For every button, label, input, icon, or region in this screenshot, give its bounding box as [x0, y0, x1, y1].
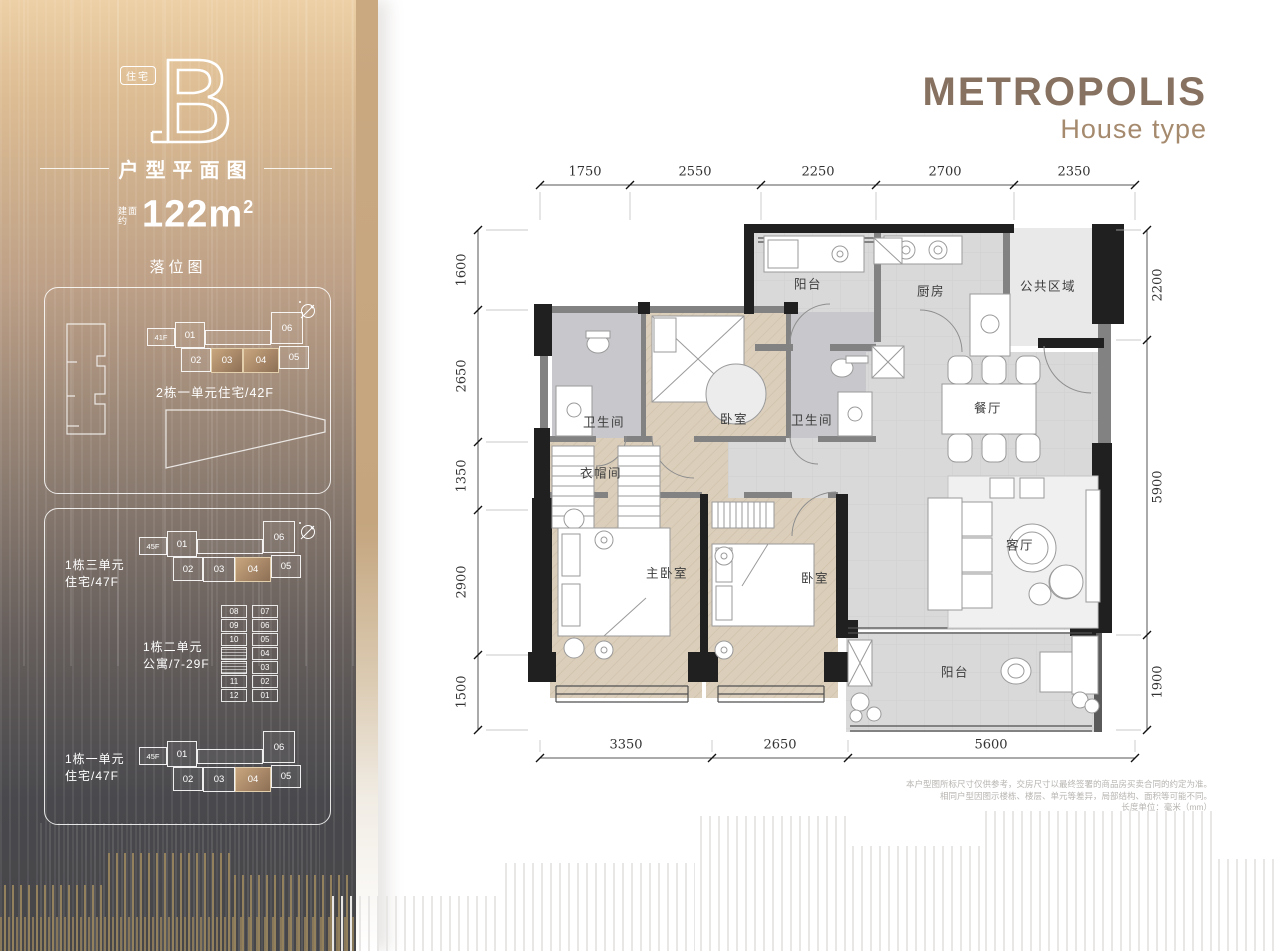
room-label-bedroom-top: 卧室	[720, 409, 748, 428]
tower-unit: 11	[221, 675, 247, 688]
unit-04-highlighted: 04	[235, 557, 271, 582]
dim-top-1: 1750	[568, 165, 601, 180]
skyline-bars-decor	[852, 846, 980, 951]
dim-bottom-3: 5600	[974, 738, 1007, 753]
dim-left-2: 2650	[455, 359, 470, 392]
unit-diagram-2-1: 41F 01 06 02 03 04 05	[147, 316, 309, 374]
dim-top-4: 2700	[928, 165, 961, 180]
tower-row: 09 06	[221, 619, 278, 632]
dim-top-2: 2550	[678, 165, 711, 180]
skyline-bars-decor	[505, 863, 695, 951]
tower-unit: 05	[252, 633, 278, 646]
room-label-bedroom-2: 卧室	[801, 568, 829, 587]
location-map-title: 落位图	[0, 256, 356, 277]
disclaimer-line-1: 本户型图所标尺寸仅供参考，交房尺寸以最终签署的商品房买卖合同的约定为准。	[878, 779, 1212, 791]
group2-label: 1栋二单元 公寓/7-29F	[143, 639, 210, 673]
sidebar-edge-gradient	[356, 0, 378, 951]
area-row: 建面 约 122m2	[118, 190, 254, 232]
group2-line2: 公寓/7-29F	[143, 656, 210, 673]
unit-04-highlighted: 04	[243, 348, 279, 373]
unit-01: 01	[167, 741, 197, 767]
plan-title-row: 户型平面图	[40, 154, 332, 183]
area-prefix-line2: 约	[118, 216, 138, 226]
dim-right-1: 2200	[1151, 268, 1166, 301]
room-label-kitchen: 厨房	[917, 281, 945, 300]
floor-tag: 45F	[139, 747, 167, 765]
tower-unit: 07	[252, 605, 278, 618]
unit-02: 02	[173, 767, 203, 791]
group1-line1: 1栋三单元	[65, 557, 125, 574]
tower-diagram: 08 07 09 06 10 05 04 03	[221, 605, 278, 702]
unit-02: 02	[181, 348, 211, 372]
skyline-bars-decor	[0, 917, 356, 951]
tower-row: 04	[221, 647, 278, 660]
unit-01: 01	[175, 322, 205, 348]
floorplan-drawing	[440, 140, 1180, 820]
skyline-bars-decor	[332, 896, 500, 951]
group1-line2: 住宅/47F	[65, 574, 125, 591]
room-label-bathroom-left: 卫生间	[583, 412, 625, 431]
unit-01: 01	[167, 531, 197, 557]
tower-row: 12 01	[221, 689, 278, 702]
unit-06: 06	[271, 312, 303, 344]
disclaimer-line-2: 相同户型因图示楼栋、楼层、单元等差异，局部结构、面积等可能不同。	[878, 791, 1212, 803]
core-block	[205, 330, 271, 345]
brand-title: METROPOLIS	[923, 70, 1207, 115]
skyline-bars-decor	[1218, 859, 1280, 951]
unit-06: 06	[263, 521, 295, 553]
podium-outline	[163, 400, 329, 482]
unit-03-highlighted: 03	[211, 348, 243, 373]
tower-unit: 04	[252, 647, 278, 660]
tower-row: 11 02	[221, 675, 278, 688]
unit-04-highlighted: 04	[235, 767, 271, 792]
dim-right-3: 1900	[1151, 665, 1166, 698]
skyline-bars-decor	[700, 816, 848, 951]
room-label-master-bedroom: 主卧室	[646, 563, 688, 582]
core-block	[197, 539, 263, 554]
room-label-dining: 餐厅	[974, 398, 1002, 417]
tower-row: 08 07	[221, 605, 278, 618]
group3-line2: 住宅/47F	[65, 768, 125, 785]
group3-label: 1栋一单元 住宅/47F	[65, 751, 125, 785]
unit-05: 05	[271, 555, 301, 578]
tower-unit: 06	[252, 619, 278, 632]
unit-03: 03	[203, 767, 235, 792]
unit-05: 05	[279, 346, 309, 369]
area-prefix-line1: 建面	[118, 206, 138, 216]
dim-right-2: 5900	[1151, 470, 1166, 503]
unit-02: 02	[173, 557, 203, 581]
tower-row: 03	[221, 661, 278, 674]
plan-title: 户型平面图	[119, 154, 254, 183]
title-line-right	[264, 168, 333, 169]
area-value: 122m2	[142, 190, 254, 232]
room-label-public-area: 公共区域	[1020, 276, 1076, 295]
tower-unit: 02	[252, 675, 278, 688]
logo-b-icon: B	[146, 54, 234, 152]
dim-left-5: 1500	[455, 675, 470, 708]
tower-unit: 03	[252, 661, 278, 674]
tower-unit: 09	[221, 619, 247, 632]
area-prefix: 建面 约	[118, 206, 138, 226]
room-label-cloakroom: 衣帽间	[580, 463, 622, 482]
location-panel-2: 1栋三单元 住宅/47F 45F 01 06 02 03 04 05 1栋二单元…	[44, 508, 331, 825]
elevator-core	[221, 647, 247, 660]
unit-06: 06	[263, 731, 295, 763]
dim-top-3: 2250	[801, 165, 834, 180]
tower-unit: 08	[221, 605, 247, 618]
disclaimer: 本户型图所标尺寸仅供参考，交房尺寸以最终签署的商品房买卖合同的约定为准。 相同户…	[878, 779, 1212, 814]
skyline-bars-decor	[985, 811, 1213, 951]
group3-line1: 1栋一单元	[65, 751, 125, 768]
room-label-living-room: 客厅	[1006, 535, 1034, 554]
dim-top-5: 2350	[1057, 165, 1090, 180]
dim-left-1: 1600	[455, 253, 470, 286]
panel1-caption: 2栋一单元住宅/42F	[100, 382, 330, 401]
lobby-core	[221, 661, 247, 674]
tower-row: 10 05	[221, 633, 278, 646]
area-exponent: 2	[243, 197, 254, 217]
tower-unit: 12	[221, 689, 247, 702]
poster: 住宅 B 户型平面图 建面 约 122m2 落位图	[0, 0, 1280, 951]
group1-label: 1栋三单元 住宅/47F	[65, 557, 125, 591]
group2-line1: 1栋二单元	[143, 639, 210, 656]
floor-tag: 45F	[139, 537, 167, 555]
dim-left-3: 1350	[455, 459, 470, 492]
room-label-balcony-bottom: 阳台	[941, 662, 969, 681]
room-label-bathroom-right: 卫生间	[791, 410, 833, 429]
core-block	[197, 749, 263, 764]
unit-03: 03	[203, 557, 235, 582]
dim-bottom-2: 2650	[763, 738, 796, 753]
title-line-left	[40, 168, 109, 169]
floorplan: 阳台 厨房 公共区域 卫生间 卧室 卫生间 餐厅 衣帽间 主卧室 卧室 客厅 阳…	[440, 140, 1180, 820]
sidebar: 住宅 B 户型平面图 建面 约 122m2 落位图	[0, 0, 356, 951]
tower-unit: 01	[252, 689, 278, 702]
dim-bottom-1: 3350	[609, 738, 642, 753]
tower-unit: 10	[221, 633, 247, 646]
dim-left-4: 2900	[455, 565, 470, 598]
unit-05: 05	[271, 765, 301, 788]
location-panel-1: 41F 01 06 02 03 04 05 2栋一单元住宅/42F	[44, 287, 331, 494]
floor-tag: 41F	[147, 328, 175, 346]
area-number: 122m	[142, 194, 243, 236]
unit-diagram-1-1: 45F 01 06 02 03 04 05	[139, 735, 301, 793]
room-label-balcony-top: 阳台	[794, 274, 822, 293]
unit-diagram-1-3: 45F 01 06 02 03 04 05	[139, 525, 301, 583]
